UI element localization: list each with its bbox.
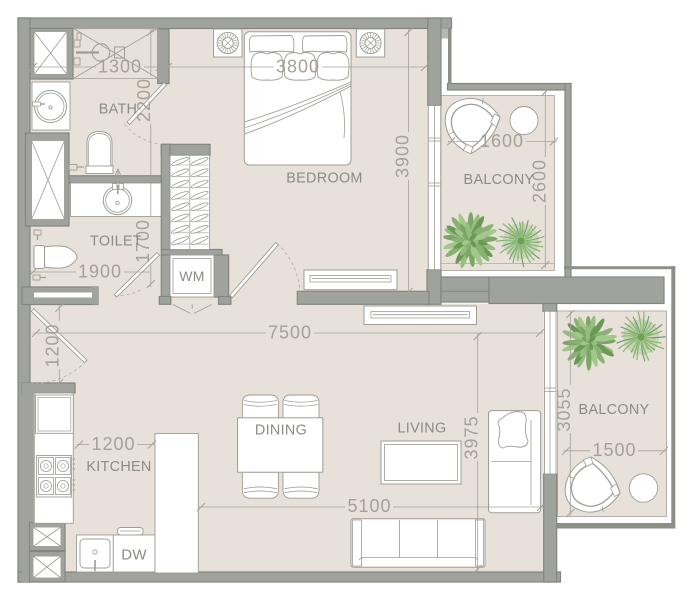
svg-text:LIVING: LIVING — [398, 421, 447, 437]
svg-text:BEDROOM: BEDROOM — [286, 171, 362, 187]
svg-text:3800: 3800 — [276, 57, 320, 77]
svg-text:1600: 1600 — [480, 131, 524, 151]
svg-text:1300: 1300 — [98, 57, 142, 77]
svg-text:WM: WM — [179, 268, 204, 284]
svg-text:1200: 1200 — [43, 323, 63, 367]
svg-text:DW: DW — [121, 547, 147, 564]
svg-text:7500: 7500 — [268, 323, 312, 343]
svg-text:BALCONY: BALCONY — [464, 172, 535, 188]
svg-text:3055: 3055 — [554, 387, 574, 431]
svg-text:1900: 1900 — [78, 262, 122, 282]
svg-text:1200: 1200 — [91, 434, 135, 454]
svg-text:KITCHEN: KITCHEN — [86, 459, 151, 475]
svg-text:3975: 3975 — [462, 415, 482, 459]
svg-text:1500: 1500 — [592, 440, 636, 460]
svg-text:TOILET: TOILET — [90, 234, 142, 250]
svg-text:5100: 5100 — [347, 496, 391, 516]
svg-text:3900: 3900 — [393, 134, 413, 178]
svg-text:BALCONY: BALCONY — [579, 402, 650, 418]
svg-text:BATH: BATH — [99, 102, 138, 118]
svg-text:DINING: DINING — [255, 423, 307, 439]
